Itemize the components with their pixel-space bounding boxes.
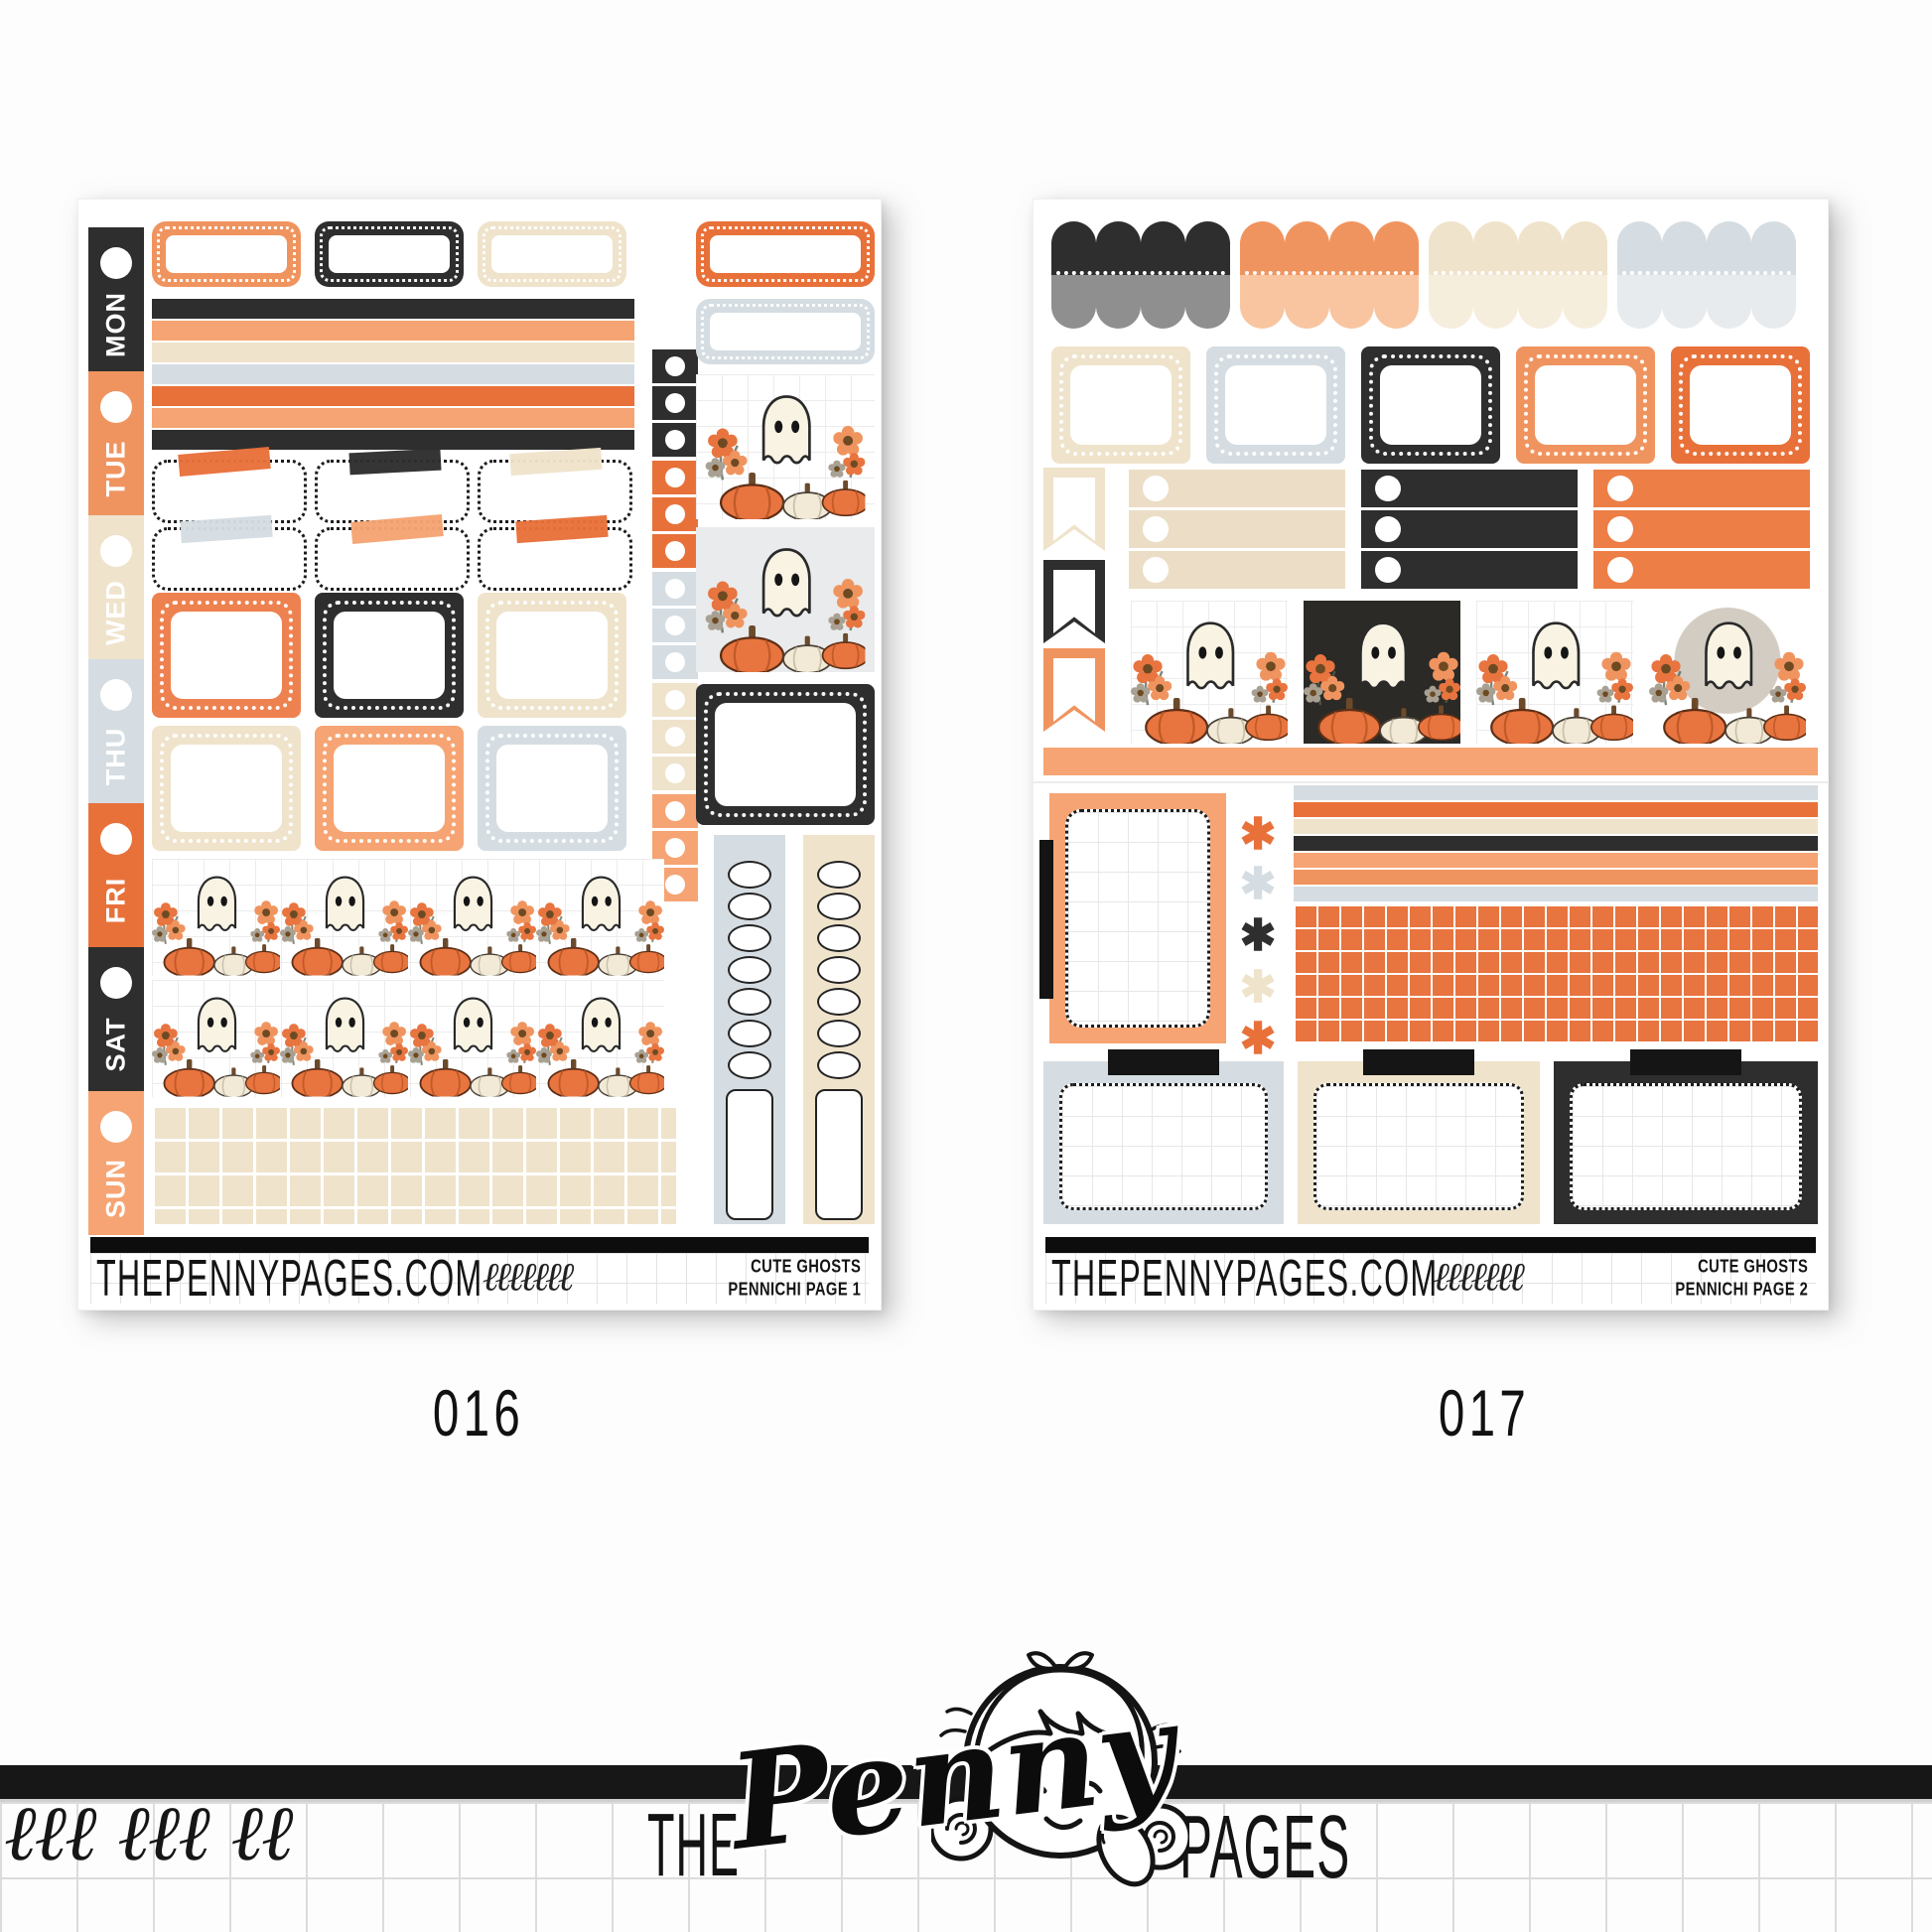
ghost-art-card: [1649, 601, 1806, 744]
scallop-bump: [1329, 284, 1374, 329]
full-box: [315, 726, 464, 851]
checkbox-cell: [652, 572, 698, 606]
box-core: [171, 612, 282, 699]
hole-dot: [100, 535, 132, 567]
scallop-bump: [1285, 284, 1329, 329]
dotted-box: [315, 527, 470, 591]
checkbox-cell: [652, 720, 698, 754]
washi-strip: [1294, 802, 1818, 817]
washi-strip: [1294, 887, 1818, 901]
checkbox-cell: [652, 794, 698, 828]
washi-strip: [152, 430, 634, 450]
full-box: [478, 726, 626, 851]
tally-oval: [728, 956, 771, 984]
scallop-bottom: [1429, 284, 1607, 329]
kit-collection: CUTE GHOSTS: [728, 1255, 861, 1278]
pennant-flag: [1043, 648, 1105, 732]
ghost-scene-art: [1304, 601, 1460, 744]
checkbox-cell: [652, 386, 698, 420]
scallop-bump: [1518, 284, 1563, 329]
clipboard-clip: [1108, 1049, 1219, 1075]
checklist-group-orange: [1593, 470, 1810, 592]
washi-strip: [1294, 819, 1818, 834]
full-box: [1516, 346, 1655, 464]
clipboard-box: [1554, 1061, 1818, 1224]
label-pill: [315, 221, 464, 287]
washi-strip: [152, 321, 634, 341]
box-core: [1690, 365, 1791, 445]
scallop-bump: [1141, 284, 1185, 329]
tally-oval: [728, 1051, 771, 1079]
box-core: [1070, 365, 1172, 445]
checkbox-cell: [652, 534, 698, 568]
tally-oval: [817, 893, 861, 920]
dotted-box: [478, 527, 632, 591]
washi-tape: [178, 447, 271, 477]
ghost-washi-strip: [152, 980, 664, 1097]
scallop-sticker: [1617, 221, 1796, 329]
dotted-line: [1622, 271, 1791, 275]
checkbox-group-beige: [652, 683, 698, 793]
tally-oval: [817, 1051, 861, 1079]
box-core: [496, 745, 608, 832]
ghost-art-card: [1476, 601, 1633, 744]
sheet-footer: THEPENNYPAGES.COM ℓℓℓℓℓℓℓ CUTE GHOSTS PE…: [90, 1253, 869, 1304]
day-label: WED: [101, 580, 132, 645]
tally-column: [714, 835, 785, 1224]
tally-oval: [817, 956, 861, 984]
day-label: SUN: [101, 1159, 132, 1218]
product-code-017: 017: [1439, 1375, 1530, 1450]
tally-rect: [726, 1089, 773, 1220]
clipboard-core: [1570, 1083, 1802, 1210]
day-tab-wed: WED: [88, 515, 144, 659]
washi-strip: [1294, 853, 1818, 868]
dotted-line: [1434, 271, 1602, 275]
checkbox-cell: [652, 497, 698, 531]
grid-note-box: [1049, 793, 1226, 1043]
label-pill: [696, 299, 875, 364]
product-code-016: 016: [433, 1375, 524, 1450]
asterisk-sticker: ✱: [1238, 914, 1278, 958]
note-side-tab: [1039, 840, 1053, 999]
footer-kit-label: CUTE GHOSTS PENNICHI PAGE 1: [728, 1255, 861, 1302]
dotted-line: [1056, 271, 1225, 275]
scallop-bump: [1185, 284, 1230, 329]
hole-dot: [100, 679, 132, 711]
washi-strip: [152, 408, 634, 428]
scallop-bump: [1662, 284, 1707, 329]
full-box: [152, 726, 301, 851]
box-core: [1225, 365, 1326, 445]
orange-washi-strip: [1043, 748, 1818, 775]
checklist-bar: [1129, 551, 1345, 589]
checkbox-group-dark-orange: [652, 461, 698, 571]
scallop-bump: [1374, 284, 1419, 329]
ghost-scene-art: [1476, 601, 1633, 744]
scallop-bump: [1751, 284, 1796, 329]
tally-oval: [817, 924, 861, 952]
label-pill: [696, 221, 875, 287]
checkbox-cell: [652, 609, 698, 642]
brand-word-pages: PAGES: [1179, 1797, 1350, 1899]
scallop-sticker: [1240, 221, 1419, 329]
clipboard-box: [1298, 1061, 1540, 1224]
dotted-line: [1245, 271, 1414, 275]
flag-core: [1053, 658, 1095, 722]
day-tab-sat: SAT: [88, 947, 144, 1091]
ghost-art-card: [1304, 601, 1460, 744]
label-pill: [478, 221, 626, 287]
scallop-bottom: [1617, 284, 1796, 329]
tally-oval: [728, 988, 771, 1016]
day-label: THU: [101, 728, 132, 786]
scallop-bump: [1473, 284, 1518, 329]
checkbox-cell: [652, 461, 698, 494]
full-box: [478, 593, 626, 718]
checklist-bar: [1361, 470, 1578, 507]
dotted-box: [152, 460, 307, 523]
checklist-bar: [1593, 510, 1810, 548]
ghost-art-card: [696, 374, 875, 519]
day-label: TUE: [101, 441, 132, 497]
scallop-bump: [1617, 284, 1662, 329]
note-core: [1065, 809, 1210, 1028]
washi-strip-stack: [152, 299, 634, 450]
dotted-box: [152, 527, 307, 591]
full-box: [1671, 346, 1810, 464]
full-box: [1361, 346, 1500, 464]
checklist-bar: [1593, 551, 1810, 589]
grid-washi-block: [1294, 904, 1818, 1043]
tally-oval: [728, 893, 771, 920]
site-url: THEPENNYPAGES.COM: [1051, 1249, 1439, 1309]
tally-column: [803, 835, 875, 1224]
tally-oval: [817, 1020, 861, 1047]
scallop-bump: [1563, 284, 1607, 329]
scallop-sticker: [1051, 221, 1230, 329]
day-tab-sun: SUN: [88, 1091, 144, 1235]
day-tab-fri: FRI: [88, 803, 144, 947]
washi-strip: [1294, 785, 1818, 800]
hole-dot: [100, 823, 132, 855]
ghost-art-card: [1131, 601, 1288, 744]
clipboard-clip: [1363, 1049, 1474, 1075]
sheet-footer: THEPENNYPAGES.COM ℓℓℓℓℓℓℓ CUTE GHOSTS PE…: [1045, 1253, 1816, 1304]
sticker-sheet-017: ✱ ✱ ✱ ✱ ✱ THEPENNYPAGES.COM ℓℓℓℓℓℓℓ CUTE…: [1033, 199, 1829, 1311]
ghost-scene-art: [696, 527, 875, 672]
pennant-flag: [1043, 560, 1105, 643]
clipboard-box: [1043, 1061, 1284, 1224]
tally-oval: [728, 861, 771, 889]
ghost-art-card: [696, 527, 875, 672]
ghost-scene-art: [1649, 601, 1806, 744]
full-box: [315, 593, 464, 718]
footer-kit-label: CUTE GHOSTS PENNICHI PAGE 2: [1675, 1255, 1808, 1302]
squiggle-doodle: ℓℓℓℓℓℓℓ: [1433, 1253, 1521, 1300]
asterisk-sticker: ✱: [1238, 966, 1278, 1010]
washi-strip-stack: [1294, 785, 1818, 901]
label-pill: [152, 221, 301, 287]
washi-strip: [152, 386, 634, 406]
sheet-seam: [1034, 781, 1828, 783]
checklist-bar: [1361, 510, 1578, 548]
scallop-bottom: [1240, 284, 1419, 329]
box-core: [1535, 365, 1636, 445]
full-box: [1206, 346, 1345, 464]
clipboard-core: [1313, 1083, 1524, 1210]
washi-tape: [348, 449, 441, 476]
full-box: [152, 593, 301, 718]
tally-oval: [728, 1020, 771, 1047]
box-core: [334, 745, 445, 832]
box-core: [171, 745, 282, 832]
checkbox-cell: [652, 757, 698, 790]
checkbox-cell: [652, 423, 698, 457]
tally-oval: [817, 861, 861, 889]
day-tab-mon: MON: [88, 227, 144, 371]
checklist-group-black: [1361, 470, 1578, 592]
tally-oval: [817, 988, 861, 1016]
flag-core: [1053, 570, 1095, 633]
site-url: THEPENNYPAGES.COM: [96, 1249, 483, 1309]
checklist-bar: [1593, 470, 1810, 507]
checkbox-cell: [652, 683, 698, 717]
day-label: SAT: [101, 1018, 132, 1072]
kit-collection: CUTE GHOSTS: [1675, 1255, 1808, 1278]
box-core: [496, 612, 608, 699]
checklist-bar: [1129, 510, 1345, 548]
ghost-scene-art: [152, 980, 664, 1097]
scallop-bump: [1096, 284, 1141, 329]
dotted-box: [315, 460, 470, 523]
pill-core: [491, 235, 613, 273]
pill-core: [166, 235, 287, 273]
scallop-bottom: [1051, 284, 1230, 329]
scallop-bump: [1051, 284, 1096, 329]
asterisk-sticker: ✱: [1238, 813, 1278, 857]
day-label: FRI: [101, 878, 132, 924]
box-core: [1380, 365, 1481, 445]
pill-core: [710, 313, 861, 350]
scallop-bump: [1707, 284, 1751, 329]
clipboard-clip: [1630, 1049, 1741, 1075]
washi-strip: [152, 343, 634, 362]
hole-dot: [100, 247, 132, 279]
dotted-box: [478, 460, 632, 523]
kit-page: PENNICHI PAGE 2: [1675, 1279, 1808, 1302]
sticker-sheet-016: MON TUE WED THU FRI SAT SUN: [77, 199, 882, 1311]
full-box: [696, 684, 875, 825]
box-core: [334, 612, 445, 699]
hole-dot: [100, 1111, 132, 1143]
scallop-bump: [1240, 284, 1285, 329]
checkbox-cell: [652, 645, 698, 679]
washi-strip: [1294, 870, 1818, 885]
grid-washi-block: [152, 1105, 676, 1224]
kit-page: PENNICHI PAGE 1: [728, 1279, 861, 1302]
full-box: [1051, 346, 1190, 464]
scallop-bump: [1429, 284, 1473, 329]
ghost-scene-art: [1131, 601, 1288, 744]
hole-dot: [100, 391, 132, 423]
checklist-bar: [1129, 470, 1345, 507]
day-tab-tue: TUE: [88, 371, 144, 515]
washi-strip: [152, 299, 634, 319]
tally-oval: [728, 924, 771, 952]
ghost-scene-art: [696, 374, 875, 519]
asterisk-sticker: ✱: [1238, 863, 1278, 906]
checkbox-cell: [652, 349, 698, 383]
clipboard-core: [1059, 1083, 1268, 1210]
washi-strip: [1294, 836, 1818, 851]
asterisk-sticker: ✱: [1238, 1018, 1278, 1061]
day-tab-thu: THU: [88, 659, 144, 803]
checkbox-group-black: [652, 349, 698, 460]
washi-tape: [509, 448, 602, 476]
scallop-sticker: [1429, 221, 1607, 329]
hole-dot: [100, 967, 132, 999]
checkbox-group-gray-blue: [652, 572, 698, 682]
day-label: MON: [101, 292, 132, 357]
squiggle-doodle: ℓℓℓℓℓℓℓ: [483, 1253, 571, 1300]
checklist-group-beige: [1129, 470, 1345, 592]
washi-strip: [152, 364, 634, 384]
checklist-bar: [1361, 551, 1578, 589]
squiggle-doodle: ℓℓℓ ℓℓℓ ℓℓ: [4, 1789, 292, 1878]
tally-rect: [815, 1089, 863, 1220]
ghost-washi-strip: [152, 859, 664, 976]
brand-word-the: THE: [647, 1795, 740, 1897]
flag-core: [1053, 478, 1095, 541]
box-core: [715, 703, 856, 806]
ghost-scene-art: [152, 859, 664, 976]
pill-core: [329, 235, 450, 273]
pill-core: [710, 235, 861, 273]
pennant-flag: [1043, 468, 1105, 551]
